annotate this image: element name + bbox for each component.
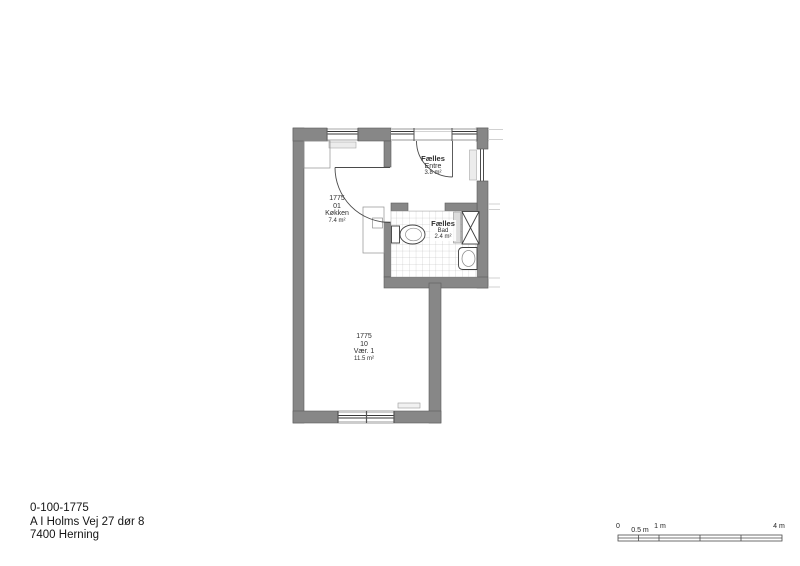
scale-bar-graphic [618, 535, 782, 541]
scale-tick-05m: 0.5 m [631, 527, 649, 534]
room-number: 10 [354, 341, 375, 349]
room-name: Vær. 1 [354, 348, 375, 356]
room-unit: 1775 [325, 195, 349, 203]
plan-number: 0-100-1775 [30, 502, 144, 516]
city-line: 7400 Herning [30, 529, 144, 543]
kitchen-corner-cabinet [304, 141, 330, 168]
kitchen-counter [363, 207, 384, 253]
title-block: 0-100-1775 A I Holms Vej 27 dør 8 7400 H… [30, 502, 144, 543]
room-name: Køkken [325, 210, 349, 218]
wall-left [293, 128, 304, 423]
room-area: 7.4 m² [325, 218, 349, 225]
floor-plan-page: 1775 01 Køkken 7.4 m² Fælles Entre 3.8 m… [0, 0, 800, 566]
room-area: 11.5 m² [354, 356, 375, 363]
wall-top-b [358, 128, 391, 141]
scale-tick-4m: 4 m [773, 523, 785, 530]
room-label-bad: Fælles Bad 2.4 m² [430, 220, 456, 241]
wall-lower-right [429, 283, 441, 423]
room-area: 3.8 m² [421, 170, 445, 177]
entre-window-sill [470, 150, 477, 180]
wall-right-upper-a [477, 128, 488, 149]
neighbor-wall-stubs [488, 130, 503, 288]
room-unit: 1775 [354, 333, 375, 341]
address-line: A I Holms Vej 27 dør 8 [30, 516, 144, 530]
toilet-icon [392, 225, 426, 244]
entre-top-glazing [391, 128, 477, 141]
entre-right-window [470, 149, 489, 181]
shower-icon [462, 212, 479, 245]
kitchen-window-sill [329, 142, 356, 148]
room1-radiator [398, 403, 420, 408]
kitchen-window [327, 128, 358, 148]
room-category: Fælles [421, 155, 445, 163]
room-label-koekken: 1775 01 Køkken 7.4 m² [325, 195, 349, 224]
wall-divider-kitchen-a [384, 141, 391, 167]
room-name: Entre [421, 163, 445, 171]
scale-tick-0: 0 [616, 523, 620, 530]
scale-tick-1m: 1 m [654, 523, 666, 530]
room-category: Fælles [430, 220, 456, 228]
wall-divider-kitchen-b [384, 222, 391, 277]
room-number: 01 [325, 203, 349, 211]
floor-plan-drawing [0, 0, 800, 566]
room-label-vaer1: 1775 10 Vær. 1 11.5 m² [354, 333, 375, 362]
sink-icon [459, 248, 478, 270]
wall-top-a [293, 128, 327, 141]
wall-bath-top-a [391, 203, 408, 211]
wall-bath-top-b [445, 203, 477, 211]
room-area: 2.4 m² [430, 234, 456, 241]
room-label-entre: Fælles Entre 3.8 m² [421, 155, 445, 177]
